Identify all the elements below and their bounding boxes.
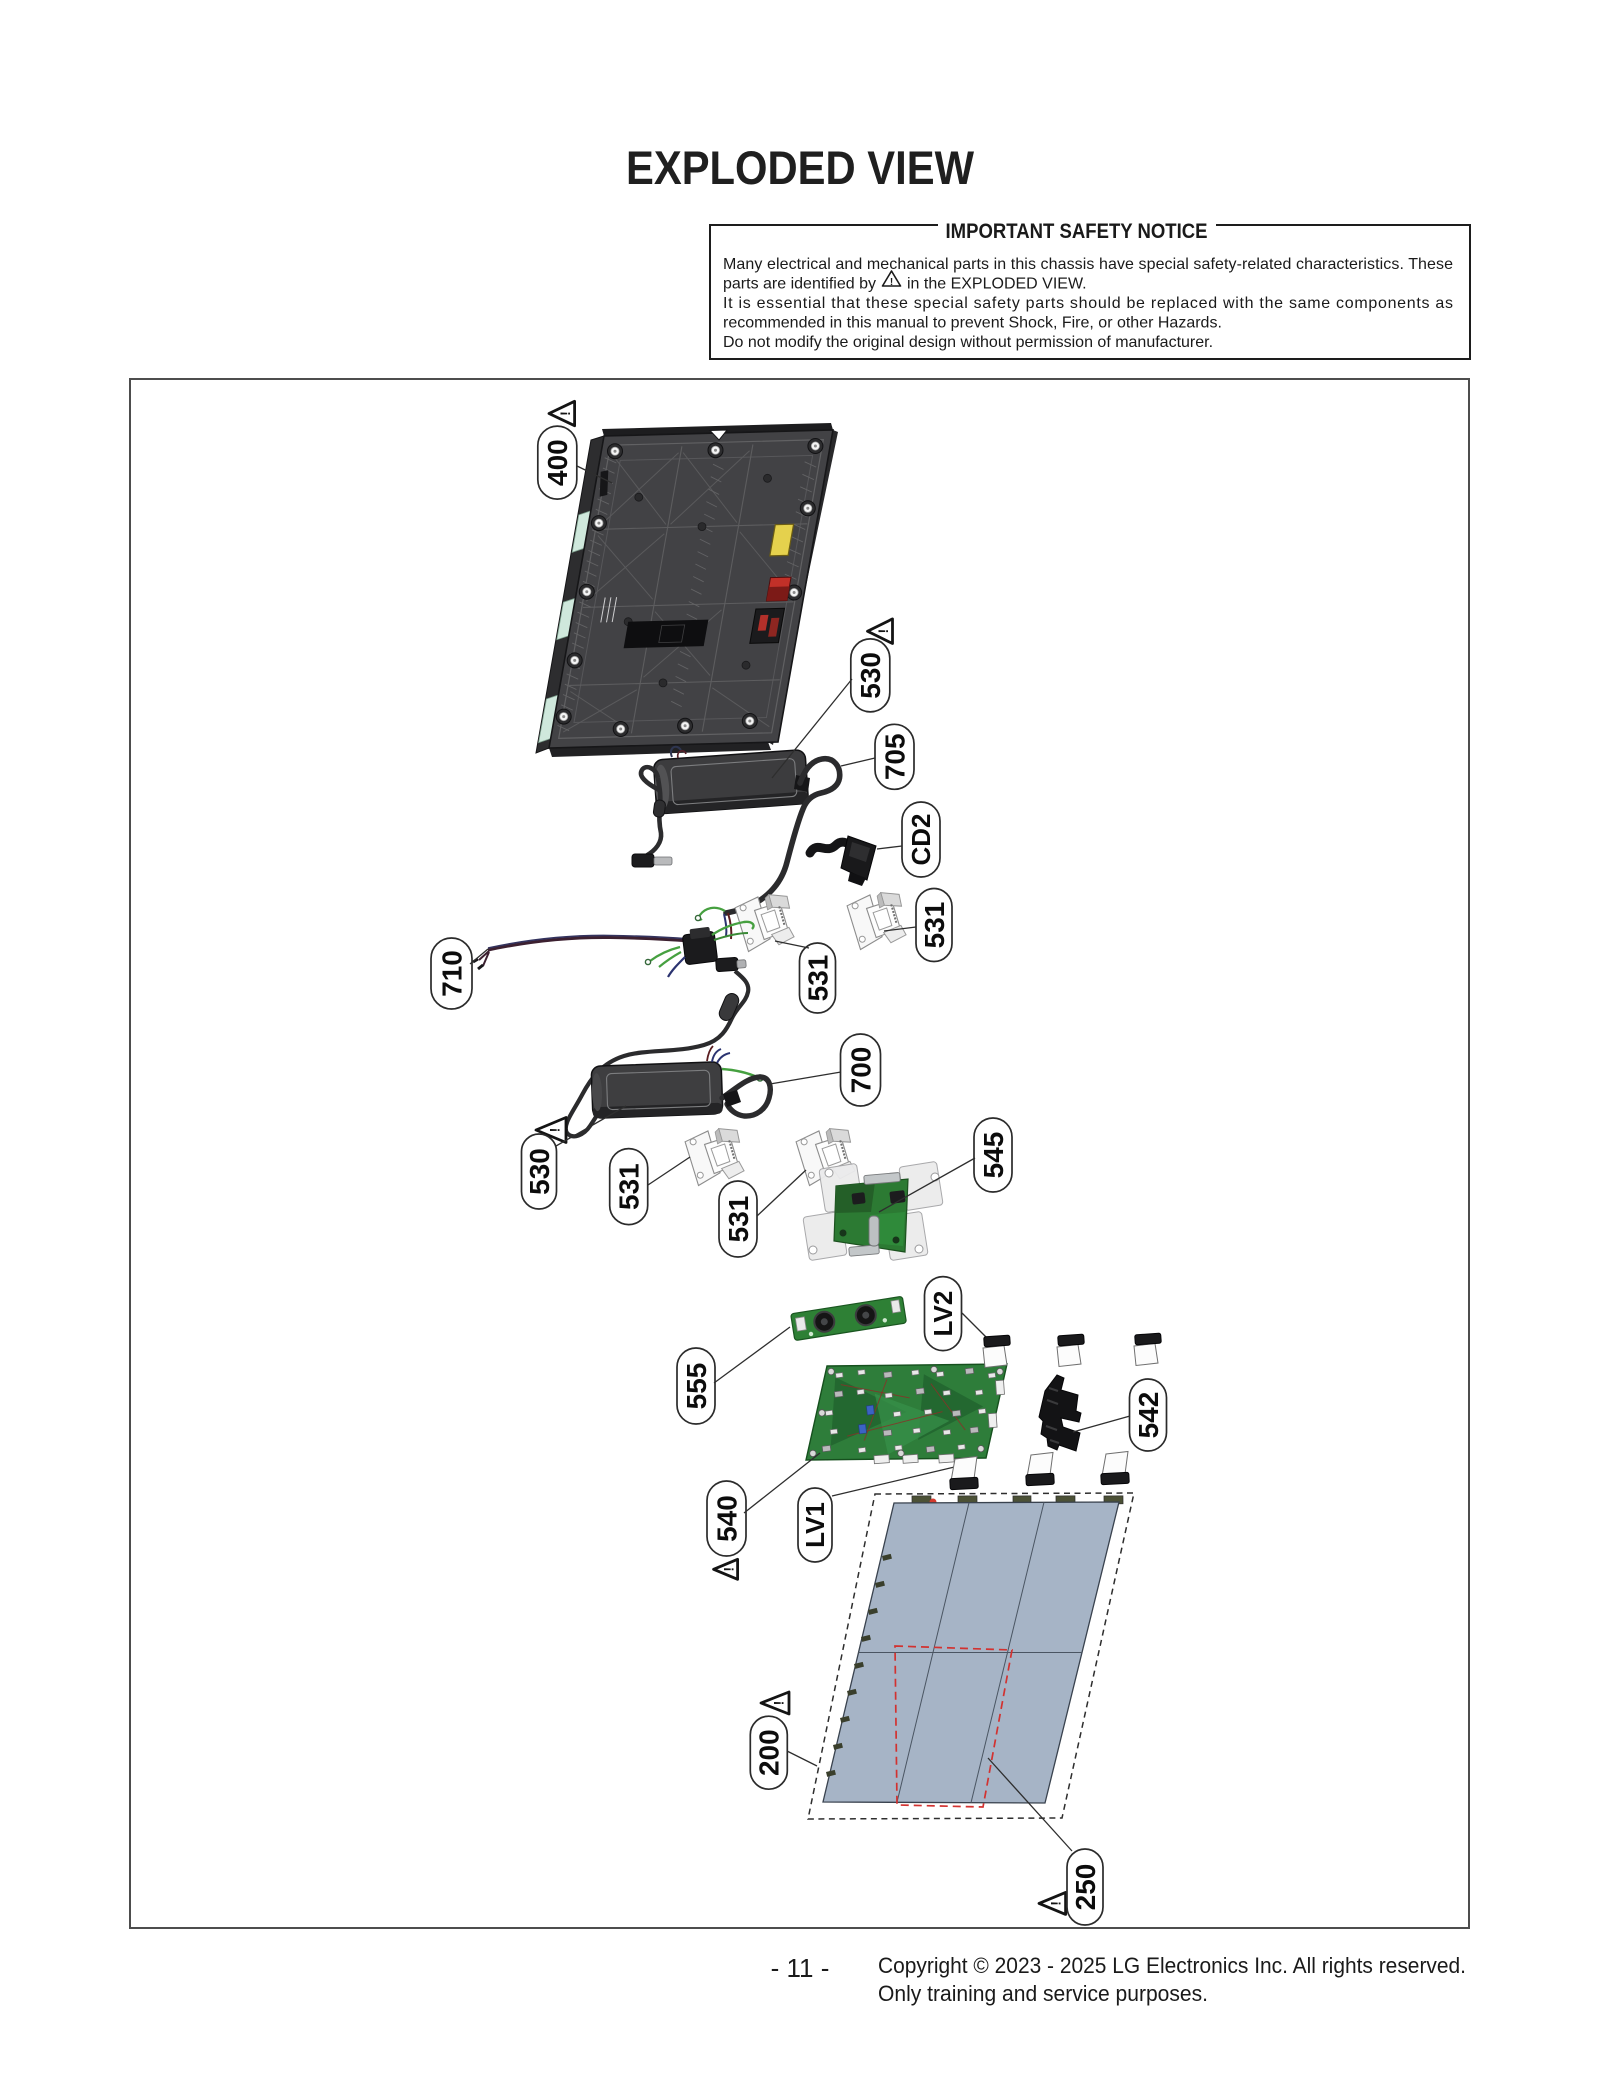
svg-text:531: 531 bbox=[919, 902, 950, 949]
svg-text:530: 530 bbox=[855, 652, 886, 699]
svg-text:Only training and service purp: Only training and service purposes. bbox=[878, 1981, 1208, 2006]
svg-text:555: 555 bbox=[681, 1363, 712, 1410]
svg-text:IMPORTANT SAFETY NOTICE: IMPORTANT SAFETY NOTICE bbox=[946, 219, 1208, 243]
svg-text:CD2: CD2 bbox=[906, 813, 936, 865]
svg-text:531: 531 bbox=[614, 1163, 645, 1210]
svg-text:It is essential that these spe: It is essential that these special safet… bbox=[723, 295, 1453, 312]
svg-text:531: 531 bbox=[723, 1196, 754, 1243]
svg-text:700: 700 bbox=[845, 1047, 876, 1094]
svg-text:!: ! bbox=[720, 1567, 736, 1572]
svg-text:542: 542 bbox=[1133, 1392, 1164, 1439]
svg-text:!: ! bbox=[875, 629, 891, 634]
svg-text:250: 250 bbox=[1070, 1864, 1101, 1911]
svg-text:EXPLODED VIEW: EXPLODED VIEW bbox=[626, 141, 975, 194]
svg-text:parts are identified by: parts are identified by bbox=[723, 276, 876, 293]
svg-text:200: 200 bbox=[754, 1729, 785, 1776]
svg-text:!: ! bbox=[547, 1128, 563, 1133]
svg-text:Do not modify the original des: Do not modify the original design withou… bbox=[723, 334, 1213, 351]
svg-text:LV1: LV1 bbox=[800, 1502, 830, 1548]
svg-text:!: ! bbox=[557, 411, 573, 416]
svg-text:recommended in this manual to: recommended in this manual to prevent Sh… bbox=[723, 315, 1222, 332]
svg-text:400: 400 bbox=[542, 439, 573, 486]
svg-text:!: ! bbox=[770, 1701, 786, 1706]
svg-text:545: 545 bbox=[978, 1132, 1009, 1179]
svg-text:705: 705 bbox=[879, 733, 910, 780]
svg-text:710: 710 bbox=[436, 950, 467, 997]
svg-text:Many electrical and mechanical: Many electrical and mechanical parts in … bbox=[723, 256, 1453, 273]
svg-text:530: 530 bbox=[524, 1148, 555, 1195]
svg-text:531: 531 bbox=[802, 955, 833, 1002]
svg-text:!: ! bbox=[890, 277, 893, 288]
svg-text:Copyright © 2023 - 2025 LG Ele: Copyright © 2023 - 2025 LG Electronics I… bbox=[878, 1953, 1466, 1978]
svg-text:!: ! bbox=[1047, 1901, 1063, 1906]
svg-text:- 11 -: - 11 - bbox=[771, 1953, 830, 1983]
svg-text:540: 540 bbox=[711, 1495, 742, 1542]
svg-text:in the EXPLODED VIEW.: in the EXPLODED VIEW. bbox=[907, 276, 1087, 293]
svg-text:LV2: LV2 bbox=[928, 1291, 958, 1337]
